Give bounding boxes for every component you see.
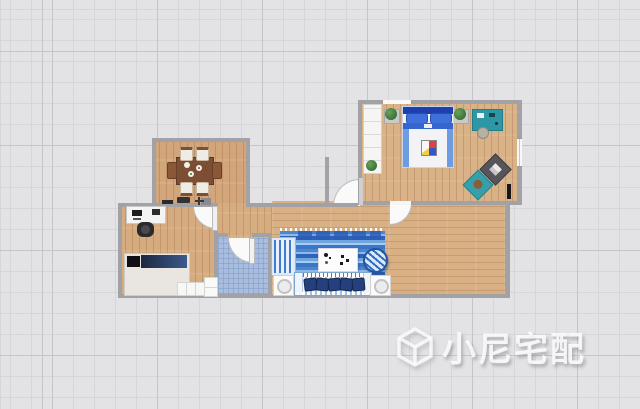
bed-headboard — [141, 255, 187, 268]
teal-dresser[interactable] — [472, 109, 503, 131]
bed-pillow-black — [127, 256, 140, 267]
dining-chair[interactable] — [180, 147, 193, 161]
bed-rail-left — [403, 129, 409, 167]
wall-bedroom-left — [358, 100, 362, 178]
bed-art-blanket — [421, 140, 437, 156]
coffee-table[interactable] — [318, 248, 358, 272]
printer-icon — [152, 209, 160, 215]
dresser-tray — [477, 113, 484, 118]
monitor-icon — [132, 210, 142, 216]
dining-chair-side[interactable] — [212, 162, 222, 179]
dresser-dot — [495, 122, 498, 125]
side-table-right[interactable] — [370, 275, 391, 296]
laptop-icon — [489, 163, 502, 176]
wall-dining-top — [152, 138, 250, 142]
round-lounge-chair[interactable] — [363, 248, 388, 273]
chair-seat — [141, 225, 150, 234]
sofa[interactable] — [294, 272, 372, 296]
rug-fringe-top — [280, 228, 385, 231]
bedroom-door-panel[interactable] — [390, 201, 411, 205]
dining-chair-side[interactable] — [167, 162, 177, 179]
storage-cabinet-low[interactable] — [177, 282, 206, 296]
decor-dot — [340, 262, 343, 265]
chair-cushion — [472, 178, 485, 191]
wall-fixture-bar[interactable] — [162, 200, 173, 204]
watermark: 小尼宅配 — [396, 322, 586, 371]
sofa-back-fringe — [303, 273, 363, 277]
floorplan-canvas: 小尼宅配 — [0, 0, 640, 409]
plant-icon — [325, 261, 328, 264]
wall-dining-left — [152, 138, 156, 207]
cup-icon — [329, 257, 331, 259]
storage-cabinet-tall[interactable] — [204, 277, 218, 297]
entry-door-arc[interactable] — [333, 179, 360, 206]
wall-fixture-hook[interactable] — [177, 197, 190, 203]
tv-bench[interactable] — [298, 231, 381, 240]
bedroom-right-window — [517, 138, 522, 167]
decor-dot — [346, 259, 349, 262]
stool[interactable] — [477, 127, 489, 139]
keyboard-icon — [133, 218, 141, 220]
desk-chair[interactable] — [137, 222, 154, 237]
entry-door-panel[interactable] — [358, 178, 363, 205]
sofa-pillow — [351, 277, 365, 291]
wall-fixture-cross[interactable] — [198, 197, 200, 205]
cube-logo-icon — [396, 326, 434, 368]
food-dot-red — [198, 167, 200, 169]
plant-left[interactable] — [385, 108, 397, 120]
wall-corridor-top — [246, 203, 358, 207]
wall-porch — [325, 157, 329, 207]
double-bed[interactable] — [402, 106, 454, 168]
dining-chair[interactable] — [196, 147, 209, 161]
plate — [184, 162, 190, 168]
dining-chair[interactable] — [196, 182, 209, 196]
wall-tv[interactable] — [507, 184, 511, 199]
watermark-text: 小尼宅配 — [442, 322, 586, 371]
decor-dot — [341, 255, 344, 258]
teapot-icon — [324, 253, 328, 257]
food-dot-green — [190, 173, 192, 175]
wall-living-right — [505, 201, 510, 298]
bedroom-top-window — [382, 100, 412, 104]
corridor-floor — [215, 203, 272, 237]
dining-table[interactable] — [176, 157, 214, 185]
armchair-striped[interactable] — [272, 238, 295, 275]
bed-fold-label — [424, 124, 432, 128]
wall-bedroom-bottom — [358, 201, 522, 205]
wall-building-left — [118, 203, 122, 298]
wall-dining-right — [246, 138, 250, 207]
lamp-icon — [277, 279, 292, 294]
dining-chair[interactable] — [180, 182, 193, 196]
side-table-left[interactable] — [273, 275, 294, 296]
wardrobe-plant[interactable] — [366, 160, 377, 171]
bed-rail-right — [447, 129, 453, 167]
sofa-skirt-fringe — [297, 292, 369, 295]
study-door-panel[interactable] — [212, 206, 218, 231]
plant-right[interactable] — [454, 108, 466, 120]
bathroom-door-panel[interactable] — [249, 238, 255, 264]
dresser-item — [489, 113, 495, 117]
wall-bath-top-left — [214, 233, 228, 237]
lamp-icon — [374, 279, 389, 294]
